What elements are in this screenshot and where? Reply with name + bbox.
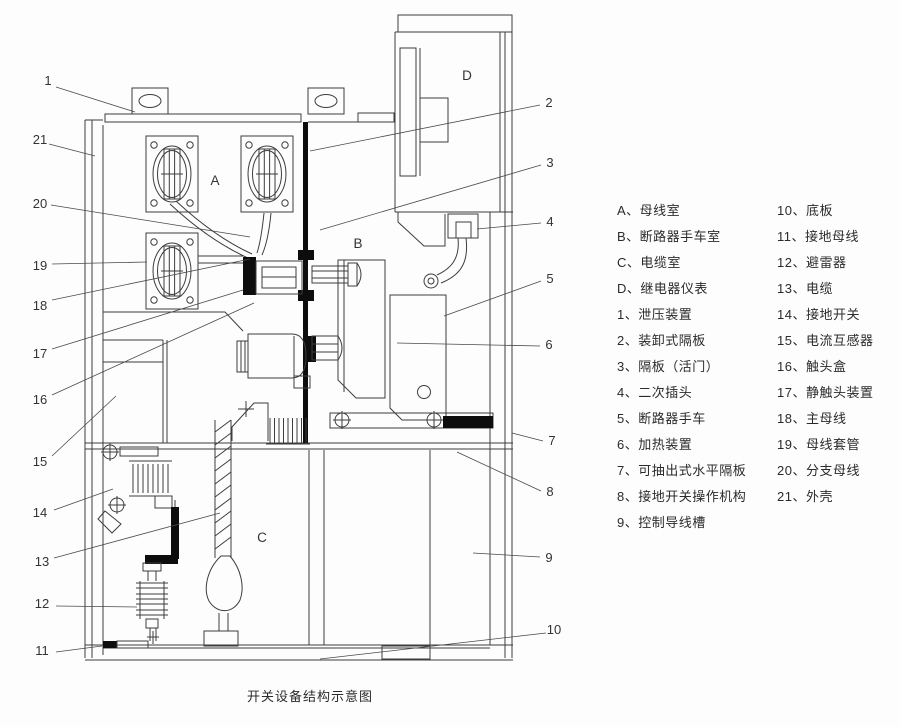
legend-item: 7、可抽出式水平隔板: [617, 458, 746, 484]
switchgear-structure-diagram: 1 21 20 19 18 17 16 15 14 13 12 11 2 3 4…: [0, 0, 900, 727]
legend-item: 6、加热装置: [617, 432, 746, 458]
compartment-label-b: B: [353, 236, 362, 251]
cable-termination: [206, 556, 242, 611]
static-contact: [243, 257, 256, 295]
secondary-plug-socket: [448, 214, 478, 238]
legend-item: 3、隔板（活门）: [617, 354, 746, 380]
legend-item: 12、避雷器: [777, 250, 873, 276]
shutter-plate: [398, 212, 445, 246]
callout-1: 1: [44, 73, 51, 88]
compartment-label-d: D: [462, 68, 472, 83]
earthing-switch-pivot: [108, 496, 126, 514]
bus-room: [103, 136, 293, 443]
legend-item: 21、外壳: [777, 484, 873, 510]
callout-16: 16: [33, 392, 47, 407]
earthing-switch-lever: [98, 511, 121, 533]
moving-contact-arm: [312, 266, 348, 283]
compartment-label-a: A: [210, 173, 219, 188]
legend-item: 11、接地母线: [777, 224, 873, 250]
diagram-caption: 开关设备结构示意图: [160, 686, 460, 705]
legend-item: 20、分支母线: [777, 458, 873, 484]
legend-item: 1、泄压装置: [617, 302, 746, 328]
callout-12: 12: [35, 596, 49, 611]
legend-item: A、母线室: [617, 198, 746, 224]
callout-15: 15: [33, 454, 47, 469]
cable-room: [98, 420, 490, 660]
branch-conductor-vertical: [171, 507, 179, 559]
ground-busbar: [103, 641, 117, 648]
legend-item: 10、底板: [777, 198, 873, 224]
callout-4: 4: [546, 214, 553, 229]
callout-11: 11: [35, 643, 49, 658]
heater-bar: [443, 416, 493, 428]
callout-14: 14: [33, 505, 47, 520]
callout-9: 9: [545, 550, 552, 565]
cable: [204, 420, 242, 646]
callout-20: 20: [33, 196, 47, 211]
legend-column-right: 10、底板 11、接地母线 12、避雷器 13、电缆 14、接地开关 15、电流…: [777, 198, 873, 510]
legend-item: C、电缆室: [617, 250, 746, 276]
handcart-front: [338, 260, 385, 398]
callout-6: 6: [545, 337, 552, 352]
callout-3: 3: [546, 155, 553, 170]
legend-item: 13、电缆: [777, 276, 873, 302]
legend-item: 8、接地开关操作机构: [617, 484, 746, 510]
legend-item: 9、控制导线槽: [617, 510, 746, 536]
branch-bus-conductor: [170, 201, 252, 258]
leader-lines: [49, 87, 546, 659]
callout-10: 10: [547, 622, 561, 637]
legend-item: 17、静触头装置: [777, 380, 873, 406]
callout-7: 7: [548, 433, 555, 448]
bus-bushing-2: [241, 136, 293, 212]
bus-room-top-cover: [105, 114, 301, 122]
callout-19: 19: [33, 258, 47, 273]
legend-item: 5、断路器手车: [617, 406, 746, 432]
legend-item: 16、触头盒: [777, 354, 873, 380]
surge-arrester: [136, 563, 168, 644]
lifting-lug-left: [132, 88, 168, 114]
earthing-switch-fins: [129, 461, 172, 496]
legend-column-left: A、母线室 B、断路器手车室 C、电缆室 D、继电器仪表 1、泄压装置 2、装卸…: [617, 198, 746, 536]
callout-5: 5: [546, 271, 553, 286]
callout-17: 17: [33, 346, 47, 361]
relay-box-cap: [398, 15, 512, 32]
callout-8: 8: [546, 484, 553, 499]
callout-2: 2: [545, 95, 552, 110]
legend-item: 14、接地开关: [777, 302, 873, 328]
callout-13: 13: [35, 554, 49, 569]
control-wire-duct: [232, 401, 268, 441]
bottom-plate: [85, 645, 513, 660]
callout-21: 21: [33, 132, 47, 147]
legend-item: 2、装卸式隔板: [617, 328, 746, 354]
secondary-plug-cable: [437, 238, 467, 283]
bus-bushing-1: [146, 136, 198, 212]
callout-numbers: 1 21 20 19 18 17 16 15 14 13 12 11 2 3 4…: [33, 73, 561, 658]
lifting-lug-right: [308, 88, 344, 114]
compartment-label-c: C: [257, 530, 267, 545]
legend-item: 4、二次插头: [617, 380, 746, 406]
callout-18: 18: [33, 298, 47, 313]
contact-box-assembly: [243, 257, 361, 360]
legend-item: 19、母线套管: [777, 432, 873, 458]
compartment-letters: A B C D: [210, 68, 472, 545]
legend-item: B、断路器手车室: [617, 224, 746, 250]
schematic-drawing: 1 21 20 19 18 17 16 15 14 13 12 11 2 3 4…: [0, 0, 900, 727]
handcart-body: [390, 295, 446, 420]
legend-item: 18、主母线: [777, 406, 873, 432]
legend-item: 15、电流互感器: [777, 328, 873, 354]
current-transformer: [237, 334, 310, 388]
legend-item: D、继电器仪表: [617, 276, 746, 302]
